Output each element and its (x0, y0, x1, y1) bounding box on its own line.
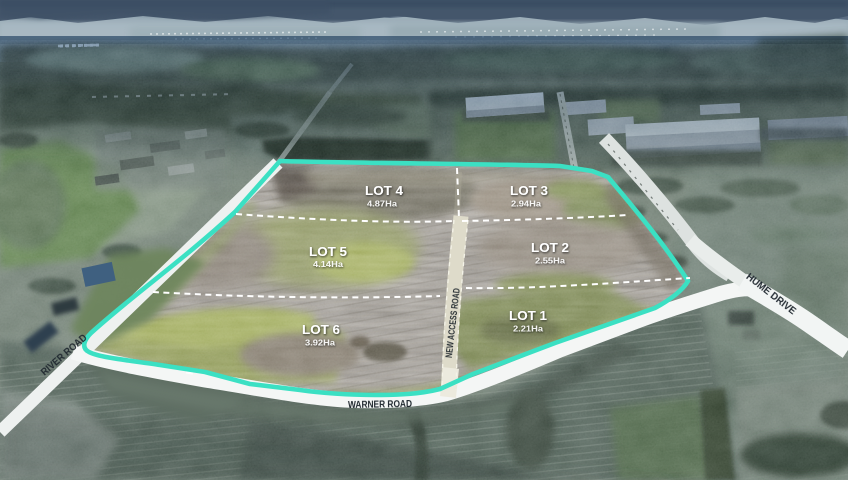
svg-text:LOT 5: LOT 5 (309, 245, 347, 259)
svg-text:2.55Ha: 2.55Ha (535, 256, 565, 266)
svg-text:WARNER ROAD: WARNER ROAD (348, 399, 412, 411)
svg-text:4.14Ha: 4.14Ha (313, 259, 343, 269)
svg-text:LOT 2: LOT 2 (531, 241, 569, 255)
svg-text:LOT 4: LOT 4 (365, 184, 403, 198)
svg-text:LOT 6: LOT 6 (302, 323, 340, 337)
svg-text:4.87Ha: 4.87Ha (367, 199, 397, 209)
svg-text:LOT 1: LOT 1 (509, 309, 547, 323)
svg-text:LOT 3: LOT 3 (510, 184, 548, 198)
svg-text:2.94Ha: 2.94Ha (511, 199, 541, 209)
svg-text:2.21Ha: 2.21Ha (513, 324, 543, 334)
svg-text:3.92Ha: 3.92Ha (305, 338, 335, 348)
